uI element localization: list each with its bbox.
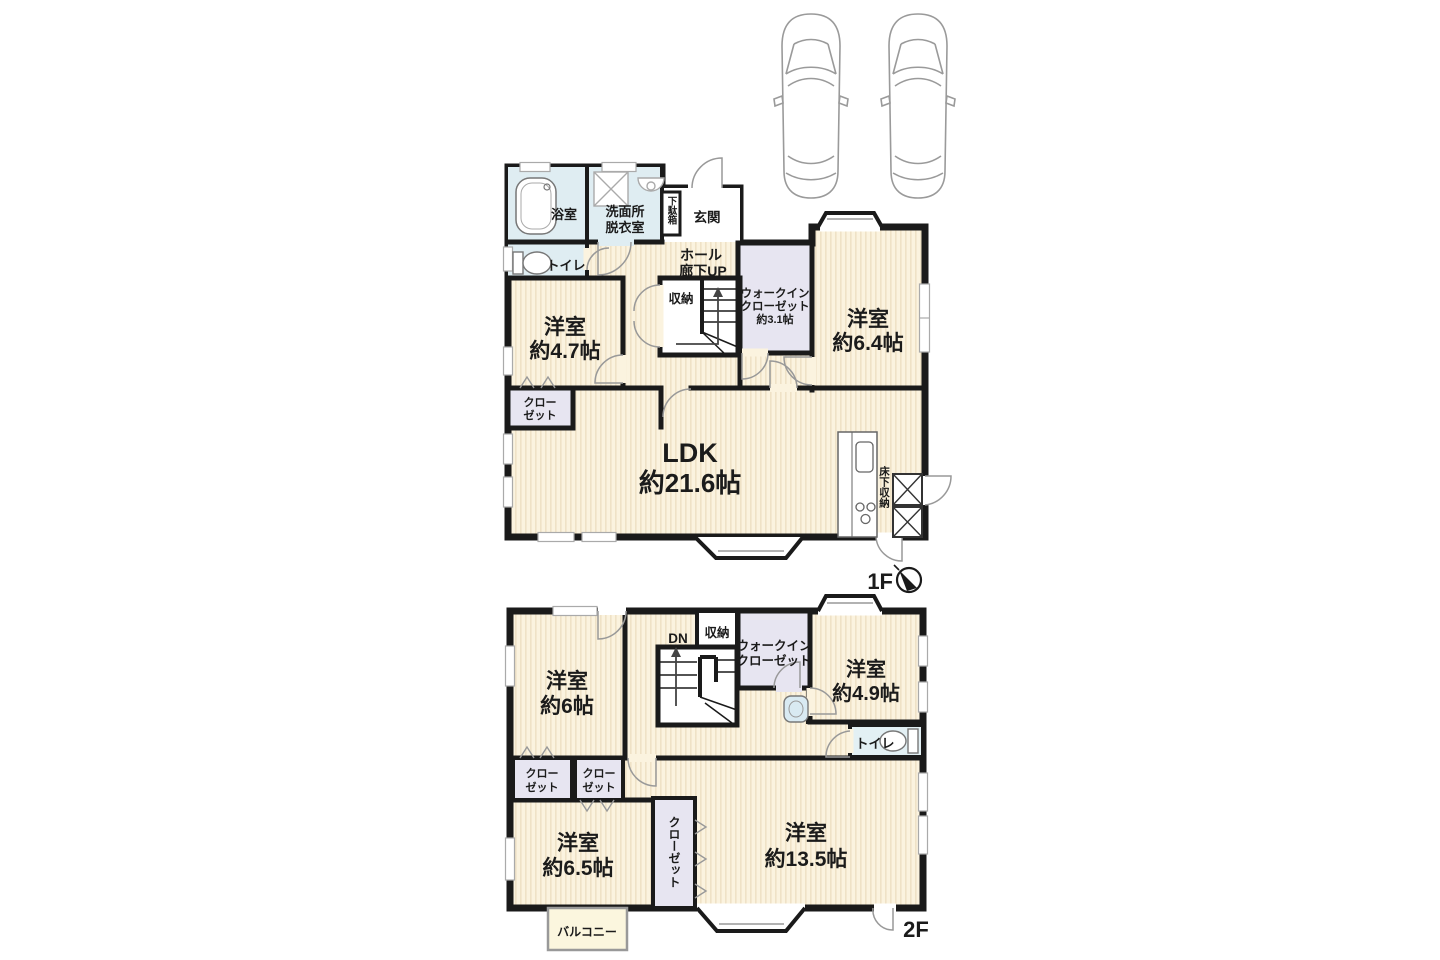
room-label-closet-a: ゼット bbox=[526, 780, 559, 794]
room-label-storage-2f: 収納 bbox=[704, 625, 729, 640]
room-label-wic-1f: 約3.1帖 bbox=[756, 312, 793, 326]
room-label-balcony: バルコニー bbox=[557, 925, 617, 939]
room-label-washroom: 洗面所 bbox=[605, 204, 644, 219]
car-icon bbox=[881, 14, 955, 198]
room-label-toilet-2f: トイレ bbox=[855, 736, 894, 751]
room-label-room64: 洋室 bbox=[847, 307, 889, 331]
floor-2f: バルコニー 洋室 約6帖 DN 収納 ウォークイン クローゼット 洋室 約4.9… bbox=[506, 596, 929, 950]
room-label-ldk: 約21.6帖 bbox=[639, 468, 742, 498]
room-label-toilet-1f: トイレ bbox=[546, 258, 585, 273]
room-label-closet-b: クロー bbox=[583, 767, 616, 780]
room-label-wic-2f: クローゼット bbox=[736, 653, 811, 668]
room-label-hall: 廊下UP bbox=[679, 263, 726, 279]
room-label-wic-1f: クローゼット bbox=[741, 299, 810, 313]
room-label-room64: 約6.4帖 bbox=[832, 331, 903, 355]
room-label-room49: 約4.9帖 bbox=[832, 681, 900, 705]
car-icon bbox=[774, 14, 848, 198]
room-label-room135: 約13.5帖 bbox=[765, 847, 848, 871]
floor-1f: 浴室 洗面所 脱衣室 下駄箱 玄関 トイレ ホール 廊下UP 収納 ウォークイン… bbox=[504, 158, 952, 594]
room-label-ldk: LDK bbox=[662, 438, 718, 468]
room-label-room47: 約4.7帖 bbox=[529, 339, 600, 363]
room-label-shoebox: 下駄箱 bbox=[666, 196, 679, 225]
compass-icon bbox=[894, 565, 921, 592]
floor-label-2f: 2F bbox=[903, 917, 929, 942]
bathtub-icon bbox=[516, 178, 556, 234]
stairs-dn-label: DN bbox=[668, 631, 688, 646]
room-label-closet-tall: クローゼット bbox=[667, 816, 681, 888]
kitchen-counter bbox=[838, 432, 877, 537]
room-label-room65: 洋室 bbox=[557, 831, 599, 855]
room-label-floor-storage: 床下収納 bbox=[878, 465, 890, 509]
balcony: バルコニー bbox=[548, 908, 627, 950]
kitchen-sink-icon bbox=[856, 442, 873, 472]
floor-label-1f: 1F bbox=[867, 569, 893, 594]
room-label-entrance: 玄関 bbox=[694, 209, 721, 225]
room-label-wic-2f: ウォークイン bbox=[736, 639, 811, 653]
room-label-room47: 洋室 bbox=[544, 315, 586, 339]
washbasin-icon bbox=[784, 696, 808, 722]
room-label-closet-a: クロー bbox=[526, 767, 559, 780]
floor-storage-hatch bbox=[893, 474, 922, 537]
room-label-room6: 洋室 bbox=[546, 669, 588, 693]
room-label-closet-1f: ゼット bbox=[524, 408, 557, 422]
room-label-storage-1f: 収納 bbox=[668, 291, 693, 306]
room-label-room6: 約6帖 bbox=[540, 694, 594, 718]
room-label-washroom: 脱衣室 bbox=[605, 220, 644, 235]
floorplan-page: 浴室 洗面所 脱衣室 下駄箱 玄関 トイレ ホール 廊下UP 収納 ウォークイン… bbox=[0, 0, 1440, 960]
room-label-room65: 約6.5帖 bbox=[542, 856, 613, 880]
room-label-wic-1f: ウォークイン bbox=[741, 287, 810, 300]
f2-stair-area bbox=[658, 647, 737, 725]
washing-machine-icon bbox=[594, 172, 628, 206]
room-label-closet-b: ゼット bbox=[583, 780, 616, 794]
room-label-room135: 洋室 bbox=[785, 821, 827, 845]
room-label-hall: ホール bbox=[680, 247, 722, 263]
room-label-bath: 浴室 bbox=[551, 207, 577, 222]
room-label-room49: 洋室 bbox=[846, 657, 886, 681]
room-label-closet-1f: クロー bbox=[524, 396, 557, 409]
toilet-icon bbox=[513, 252, 551, 274]
floorplan-svg: 浴室 洗面所 脱衣室 下駄箱 玄関 トイレ ホール 廊下UP 収納 ウォークイン… bbox=[0, 0, 1440, 960]
